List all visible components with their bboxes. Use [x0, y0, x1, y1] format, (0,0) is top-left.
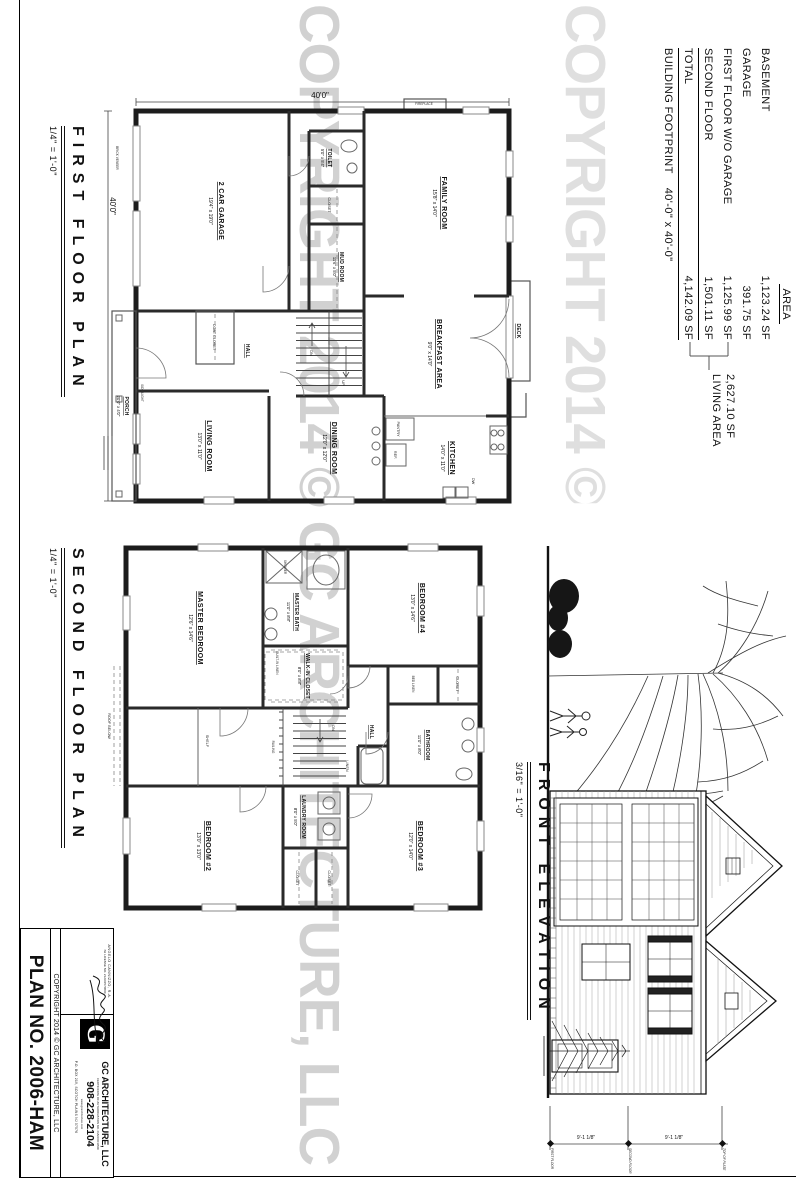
dn-label: DN	[309, 350, 313, 356]
toilet-door	[289, 156, 309, 176]
plan-title-text: FIRST FLOOR PLAN	[61, 126, 86, 397]
architectural-sheet: { "sheet": { "watermark": "COPYRIGHT 201…	[0, 0, 800, 1182]
room-dims: 14'0" x 11'0"	[439, 444, 445, 471]
brick-veneer-label: BRICK VENEER	[115, 146, 119, 170]
row-value: 40'-0" x 40'-0"	[662, 188, 674, 262]
drawing-sheet: COPYRIGHT 2014 © GC ARCHITECTURE, LLC CO…	[0, 0, 800, 1182]
room-label: BEDROOM #4	[418, 583, 425, 633]
dimension-text: 40'0"	[311, 91, 329, 100]
room-label: 2 CAR GARAGE	[217, 182, 224, 240]
elevation-dimensions: 9'-1 1/8" 9'-1 1/8" FIRST FLOOR SECOND F…	[547, 1106, 728, 1174]
plan-title-text: FRONT ELEVATION	[527, 762, 552, 1020]
pantry-label: PANTRY	[396, 421, 400, 437]
room-dims: 12'6" x 14'6"	[187, 614, 193, 642]
gable	[706, 796, 782, 936]
front-elevation-title: FRONT ELEVATION 3/16" = 1'-0"	[514, 762, 552, 1020]
row-value: 4,142.09 SF	[683, 248, 695, 340]
firm-address: P.O. BOX 219, SCOTCH PLAINS NJ 07076	[74, 1019, 78, 1175]
sink	[443, 487, 455, 498]
plan-scale: 3/16" = 1'-0"	[514, 762, 524, 1020]
plan-number: PLAN NO. 2006-HAM	[21, 929, 50, 1177]
first-floor-plan: 40'0" 40'0" FAMILY ROOM 15'8" x 14'0" BR…	[104, 96, 534, 520]
room-dims: 11'6" x 5'0"	[332, 257, 337, 278]
table-row: BASEMENT 1,123.24 SF	[756, 48, 775, 340]
shower-label: SHOWER	[283, 560, 287, 575]
room-label: LIVING ROOM	[205, 420, 212, 471]
stair-arrow	[317, 719, 323, 742]
table-row: GARAGE 391.75 SF	[737, 48, 756, 340]
up-label: UP	[341, 380, 345, 386]
dim-text: 9'-1 1/8"	[577, 1135, 596, 1141]
row-value: 391.75 SF	[741, 248, 753, 340]
table-row: SECOND FLOOR 1,501.11 SF	[699, 48, 718, 340]
table-row: FIRST FLOOR W/O GARAGE 1,125.99 SF	[718, 48, 737, 340]
stairs	[296, 311, 362, 396]
row-label: TOTAL	[683, 48, 695, 84]
house	[544, 791, 782, 1094]
room-label: BREAKFAST AREA	[435, 319, 442, 389]
row-label: BUILDING FOOTPRINT	[662, 48, 674, 174]
vanity-sink	[462, 740, 474, 752]
sheet-border-right	[20, 1176, 796, 1177]
deck-step	[509, 393, 526, 417]
room-label: FAMILY ROOM	[440, 176, 447, 229]
master-door	[220, 708, 248, 736]
row-label: SECOND FLOOR	[703, 48, 715, 141]
living-area-value: 2,627.10 SF	[724, 374, 736, 447]
room-dims: 9'0" x 14'0"	[426, 342, 432, 367]
dining-opening	[280, 372, 304, 396]
living-area-bracket	[670, 340, 740, 376]
toilet-fixture	[456, 768, 472, 780]
exterior-wall	[126, 548, 480, 908]
gable	[706, 941, 776, 1061]
hall-label: HALL	[244, 344, 250, 358]
dryer	[318, 818, 340, 840]
area-table-header: AREA	[775, 48, 792, 340]
railing-label: RAILING	[271, 741, 275, 754]
level-label: TOP OF PLATE	[722, 1148, 726, 1171]
title-block: ANGELO CANNIZZO, R.A. NJ LICENSE NO. 21A…	[20, 928, 114, 1178]
table-row-total: TOTAL 4,142.09 SF	[679, 48, 699, 340]
room-label: MASTER BATH	[293, 593, 299, 631]
row-value: 1,501.11 SF	[703, 248, 715, 340]
hall-label: HALL	[368, 725, 374, 739]
architect-signature-cell: ANGELO CANNIZZO, R.A. NJ LICENSE NO. 21A…	[61, 929, 113, 1015]
wic-door	[330, 676, 348, 694]
building-footprint-row: BUILDING FOOTPRINT 40'-0" x 40'-0"	[658, 48, 679, 340]
ref-label: REF.	[393, 451, 397, 459]
vanity-sink	[265, 608, 277, 620]
dimension-text: 40'0"	[108, 197, 117, 215]
toilet-fixture	[341, 140, 357, 152]
room-label: BATHROOM	[424, 730, 430, 761]
interior-wall	[283, 786, 348, 908]
interior-wall	[136, 391, 269, 501]
pantry-box	[386, 418, 414, 440]
firm-name: GC ARCHITECTURE, LLC	[100, 1053, 110, 1175]
stairs	[293, 716, 346, 776]
room-dims: 19'4" x 19'0"	[207, 197, 213, 225]
room-label: WALK-IN CLOSET	[304, 653, 310, 699]
closet-label: CLOSET	[327, 870, 331, 886]
roof-below-label: ROOF BELOW	[107, 713, 111, 739]
linen-label: LINEN	[345, 760, 349, 771]
living-area-callout: 2,627.10 SF LIVING AREA	[708, 374, 736, 447]
dn-label: DN	[331, 725, 335, 731]
roof-below-lines	[114, 666, 120, 786]
room-label: BEDROOM #2	[204, 821, 211, 871]
bar-stool	[372, 427, 380, 435]
bar-stool	[372, 457, 380, 465]
row-label: BASEMENT	[760, 48, 772, 112]
bed-linen-label: BED LINEN	[411, 676, 415, 694]
front-door	[544, 1034, 618, 1078]
fireplace-label: FIREPLACE	[415, 102, 433, 106]
room-label: BEDROOM #3	[416, 821, 423, 871]
room-label: MASTER BEDROOM	[196, 591, 203, 665]
area-table: AREA BASEMENT 1,123.24 SF GARAGE 391.75 …	[658, 48, 792, 340]
builtin-linen-label: BUILT-IN LINEN	[275, 651, 279, 675]
first-floor-plan-title: FIRST FLOOR PLAN 1/4" = 1'-0"	[48, 126, 86, 397]
porch-dims: 20'0" x 4'0"	[116, 396, 121, 417]
living-area-label: LIVING AREA	[710, 374, 722, 447]
plan-title-text: SECOND FLOOR PLAN	[61, 548, 86, 848]
dimension-line	[104, 111, 112, 501]
row-label: GARAGE	[741, 48, 753, 97]
deck-label: DECK	[515, 324, 521, 339]
room-dims: 15'8" x 14'0"	[431, 189, 437, 217]
second-floor-plan: BEDROOM #4 13'0" x 14'6" BEDROOM #3 12'0…	[106, 536, 498, 924]
closet-label: CLOSET	[295, 870, 299, 886]
closet-label: CLOSET	[455, 676, 459, 692]
room-dims: 11'0" x 8'8"	[286, 602, 291, 623]
bedroom2-door	[240, 786, 266, 812]
room-label: TOILET	[326, 149, 332, 168]
row-label: FIRST FLOOR W/O GARAGE	[722, 48, 734, 205]
firm-website: www.gcarchitecture.com	[80, 1053, 84, 1175]
bush	[548, 579, 579, 658]
plan-scale: 1/4" = 1'-0"	[48, 548, 58, 848]
garage-door-arc	[263, 266, 289, 292]
room-dims: 13'0" x 13'0"	[195, 832, 201, 860]
room-dims: 12'0" x 14'0"	[407, 832, 413, 860]
coat-closet-label: COAT CLOSET	[212, 324, 216, 351]
tub	[313, 555, 339, 585]
porch-label: PORCH	[123, 396, 129, 415]
sink	[456, 487, 468, 498]
deck-french-doors	[470, 299, 509, 377]
row-value: 1,125.99 SF	[722, 248, 734, 340]
room-label: MUD ROOM	[338, 252, 344, 282]
room-label: LAUNDRY ROOM	[300, 795, 306, 839]
lav-sink	[347, 163, 357, 173]
dim-text: 9'-1 1/8"	[665, 1135, 684, 1141]
room-dims: 13'0" x 11'0"	[196, 432, 202, 459]
sidelight-label: SIDE LIGHT	[140, 384, 144, 402]
room-dims: 13'0" x 14'6"	[409, 594, 415, 622]
room-label: KITCHEN	[448, 441, 455, 475]
row-value: 1,123.24 SF	[760, 248, 772, 340]
room-label: DINING ROOM	[330, 422, 337, 475]
room-dims: 8'0" x 8'8"	[297, 667, 302, 686]
level-label: SECOND FLOOR	[628, 1148, 632, 1174]
room-dims: 12'0" x 12'0"	[321, 434, 327, 462]
closet-label: CLOSET	[327, 197, 331, 213]
copyright-line: COPYRIGHT 2014 © GC ARCHITECTURE, LLC	[50, 929, 60, 1177]
room-dims: 11'0" x 8'0"	[417, 735, 422, 756]
dw-label: DW	[471, 478, 475, 485]
window-grid-bay	[554, 798, 698, 926]
firm-phone: 908-228-2104	[84, 1053, 96, 1175]
second-floor-plan-title: SECOND FLOOR PLAN 1/4" = 1'-0"	[48, 548, 86, 848]
signature	[85, 972, 111, 1048]
stair-arrow-down	[309, 323, 315, 346]
bedroom4-door	[348, 666, 370, 688]
level-label: FIRST FLOOR	[550, 1148, 554, 1170]
bar-stool	[372, 442, 380, 450]
plan-scale: 1/4" = 1'-0"	[48, 126, 58, 397]
entry-door	[136, 348, 166, 378]
railing	[279, 708, 283, 786]
interior-wall	[309, 131, 364, 311]
room-dims: 8'0" x 5'0"	[293, 808, 298, 827]
vanity-sink	[462, 718, 474, 730]
bedroom3-door	[348, 794, 372, 818]
shelf-label: SHELF	[205, 735, 209, 748]
interior-wall	[296, 396, 384, 501]
washer	[318, 792, 340, 814]
room-dims: 5'0" x 5'4"	[320, 149, 325, 168]
copyright-watermark: COPYRIGHT 2014 © GC ARCHITECTURE, LLC	[552, 4, 618, 503]
stair-arrow-up	[343, 346, 349, 377]
vanity-sink	[265, 628, 277, 640]
people-figures	[550, 709, 590, 738]
